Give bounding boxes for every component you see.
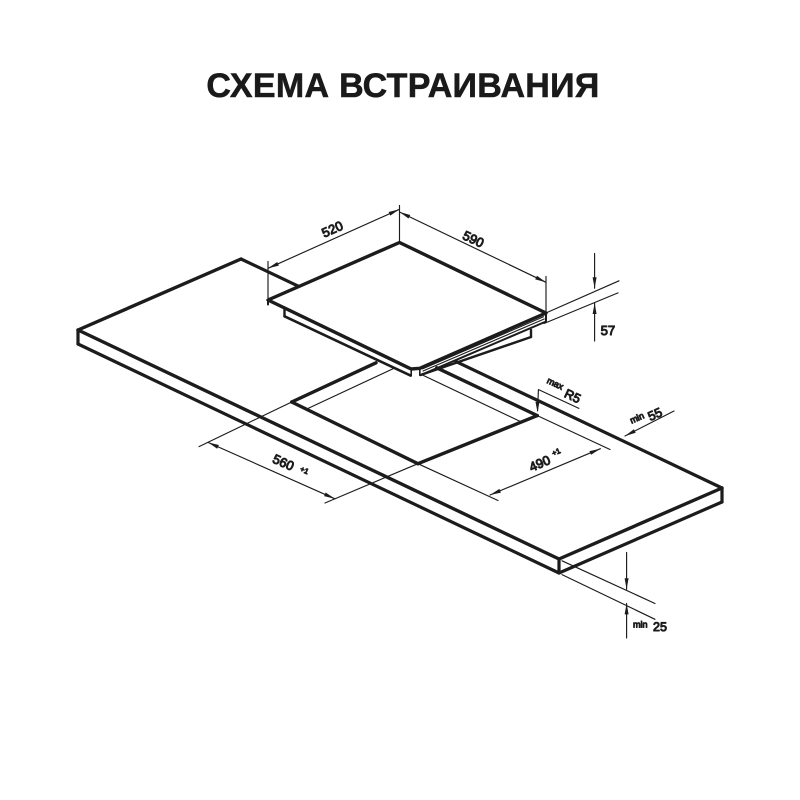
svg-text:min: min [628, 411, 645, 426]
svg-text:+1: +1 [550, 446, 561, 458]
svg-text:560: 560 [270, 451, 296, 474]
svg-text:520: 520 [319, 218, 345, 241]
svg-text:R5: R5 [562, 386, 583, 407]
svg-text:490: 490 [527, 452, 553, 474]
svg-text:min: min [633, 620, 648, 630]
svg-text:25: 25 [653, 620, 667, 634]
svg-text:57: 57 [601, 323, 616, 338]
svg-text:+1: +1 [299, 464, 310, 476]
svg-text:55: 55 [645, 404, 664, 423]
svg-text:max: max [545, 375, 565, 391]
svg-text:590: 590 [460, 228, 486, 251]
